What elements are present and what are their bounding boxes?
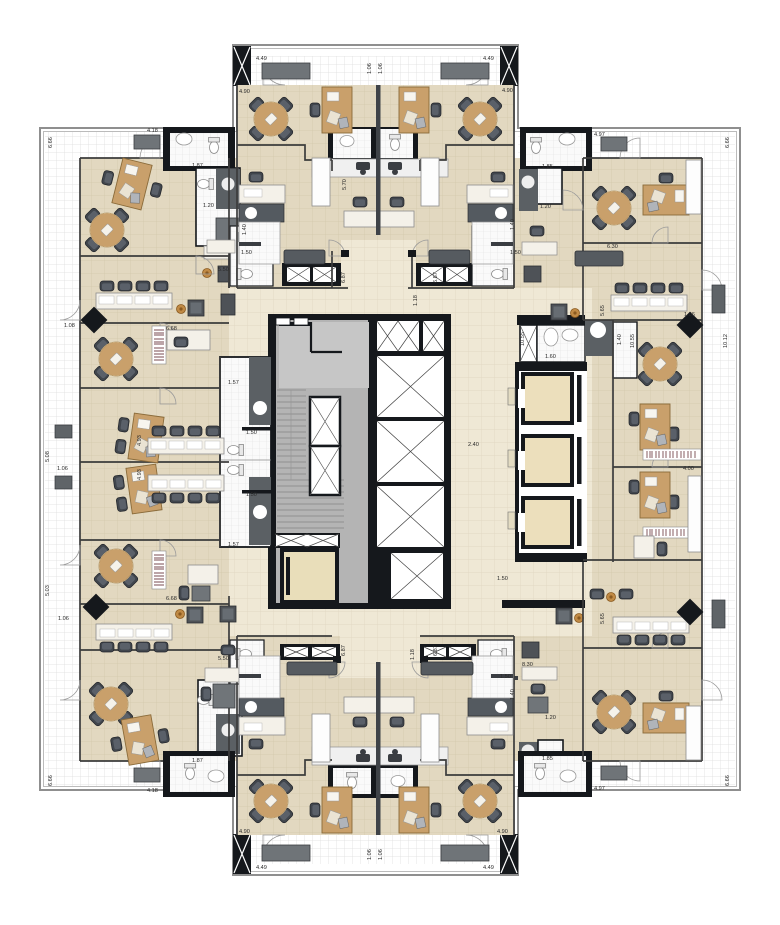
svg-text:1.57: 1.57 — [228, 542, 239, 548]
svg-text:1.50: 1.50 — [246, 430, 257, 436]
svg-text:1.18: 1.18 — [410, 649, 416, 660]
svg-text:4.00: 4.00 — [683, 466, 694, 472]
svg-text:1.06: 1.06 — [367, 63, 373, 74]
svg-text:1.20: 1.20 — [540, 204, 551, 210]
svg-text:1.08: 1.08 — [64, 323, 75, 329]
svg-text:10.55: 10.55 — [630, 334, 636, 348]
svg-text:1.85: 1.85 — [542, 164, 553, 170]
svg-text:4.97: 4.97 — [594, 132, 605, 138]
svg-text:6.66: 6.66 — [48, 775, 54, 786]
svg-text:1.40: 1.40 — [510, 689, 516, 700]
svg-text:5.03: 5.03 — [45, 585, 51, 596]
svg-text:1.87: 1.87 — [192, 163, 203, 169]
svg-text:1.50: 1.50 — [246, 492, 257, 498]
svg-text:4.49: 4.49 — [483, 56, 494, 62]
svg-text:10.55: 10.55 — [520, 332, 526, 346]
svg-text:6.87: 6.87 — [341, 645, 347, 656]
svg-text:6.66: 6.66 — [725, 137, 731, 148]
svg-text:5.50: 5.50 — [218, 656, 229, 662]
svg-text:1.40: 1.40 — [617, 334, 623, 345]
svg-text:1.06: 1.06 — [57, 466, 68, 472]
svg-text:5.08: 5.08 — [45, 451, 51, 462]
svg-text:5.65: 5.65 — [600, 305, 606, 316]
svg-text:8.30: 8.30 — [522, 662, 533, 668]
svg-text:1.06: 1.06 — [684, 312, 695, 318]
svg-text:4.90: 4.90 — [239, 89, 250, 95]
svg-text:4.93: 4.93 — [137, 469, 143, 480]
svg-text:1.20: 1.20 — [545, 715, 556, 721]
svg-text:1.60: 1.60 — [545, 354, 556, 360]
svg-text:1.40: 1.40 — [510, 219, 516, 230]
svg-text:6.87: 6.87 — [433, 272, 439, 283]
svg-text:1.06: 1.06 — [58, 616, 69, 622]
svg-text:4.49: 4.49 — [256, 865, 267, 871]
svg-text:1.20: 1.20 — [203, 203, 214, 209]
svg-text:5.70: 5.70 — [342, 179, 348, 190]
svg-text:1.85: 1.85 — [542, 756, 553, 762]
svg-text:1.06: 1.06 — [378, 63, 384, 74]
svg-text:2.40: 2.40 — [468, 442, 479, 448]
svg-text:4.90: 4.90 — [502, 88, 513, 94]
svg-text:6.87: 6.87 — [433, 645, 439, 656]
svg-text:1.50: 1.50 — [510, 250, 521, 256]
svg-text:1.06: 1.06 — [378, 849, 384, 860]
svg-text:4.49: 4.49 — [256, 56, 267, 62]
svg-text:1.50: 1.50 — [497, 576, 508, 582]
svg-text:5.50: 5.50 — [218, 267, 229, 273]
svg-text:10.12: 10.12 — [723, 334, 729, 348]
svg-text:6.68: 6.68 — [166, 326, 177, 332]
svg-text:6.87: 6.87 — [341, 272, 347, 283]
svg-text:6.30: 6.30 — [607, 244, 618, 250]
svg-text:4.93: 4.93 — [137, 435, 143, 446]
svg-text:4.49: 4.49 — [483, 865, 494, 871]
svg-text:5.65: 5.65 — [600, 613, 606, 624]
svg-text:1.50: 1.50 — [241, 250, 252, 256]
svg-text:1.57: 1.57 — [228, 380, 239, 386]
svg-text:6.66: 6.66 — [725, 775, 731, 786]
svg-text:6.68: 6.68 — [166, 596, 177, 602]
svg-text:1.40: 1.40 — [242, 224, 248, 235]
svg-text:1.50: 1.50 — [500, 674, 511, 680]
svg-text:1.06: 1.06 — [367, 849, 373, 860]
svg-text:1.18: 1.18 — [413, 295, 419, 306]
svg-text:1.87: 1.87 — [192, 758, 203, 764]
svg-text:4.18: 4.18 — [147, 788, 158, 794]
svg-text:6.66: 6.66 — [48, 137, 54, 148]
svg-text:4.97: 4.97 — [594, 786, 605, 792]
svg-text:4.18: 4.18 — [147, 128, 158, 134]
svg-text:4.90: 4.90 — [497, 829, 508, 835]
svg-text:4.90: 4.90 — [239, 829, 250, 835]
